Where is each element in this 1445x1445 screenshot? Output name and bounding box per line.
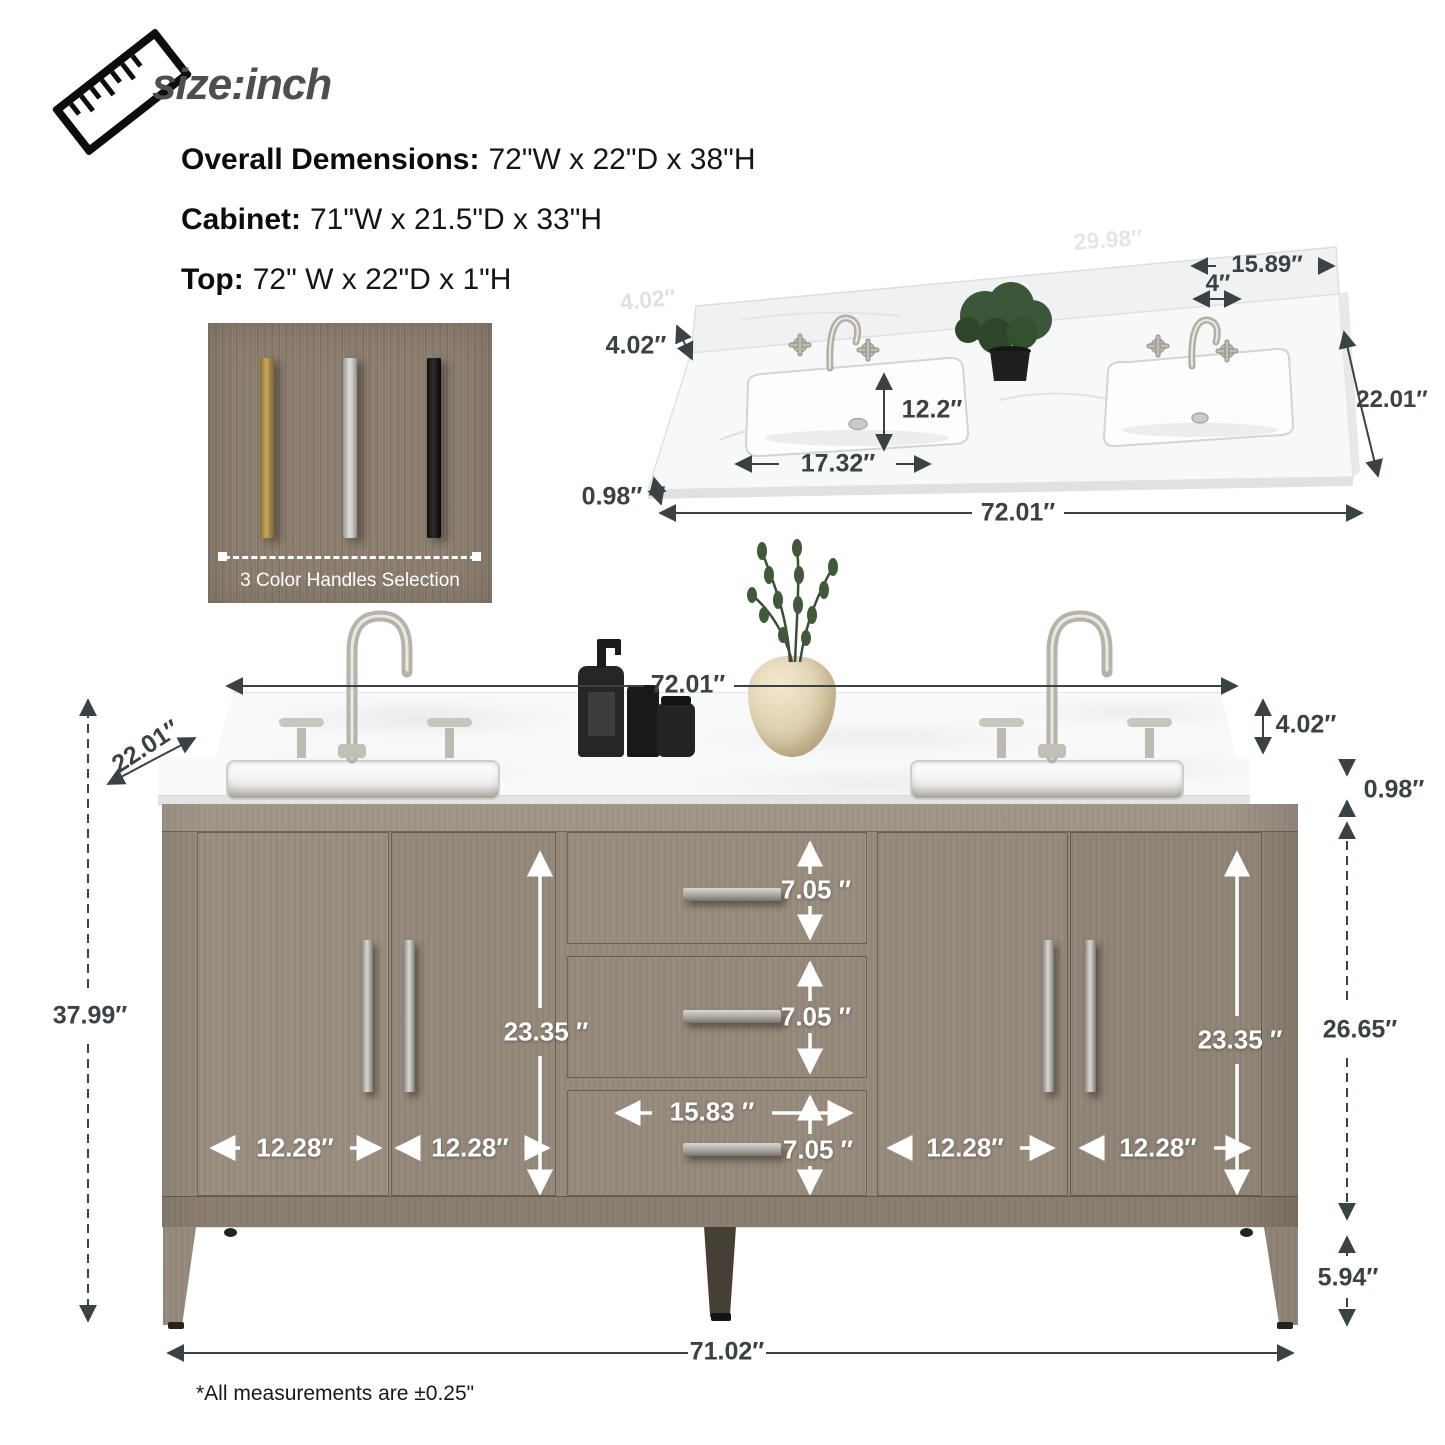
spec-cabinet-value: 71"W x 21.5"D x 33"H [310, 203, 602, 236]
vanity-plant [747, 539, 838, 662]
drawer-handle-2 [683, 1010, 781, 1023]
door-handle-left-a [362, 940, 373, 1092]
door-handle-left-b [404, 940, 415, 1092]
spec-cabinet-label: Cabinet: [181, 203, 301, 236]
dim-v-overall-height: 37.99″ [53, 1002, 128, 1031]
spec-cabinet: Cabinet:71"W x 21.5"D x 33"H [181, 203, 602, 237]
diagram-plant [955, 282, 1052, 354]
vanity-backsplash [215, 692, 1237, 759]
spec-top-value: 72" W x 22"D x 1"H [253, 263, 512, 296]
dim-ct-backsplash-height: 4.02″ [606, 332, 667, 361]
silver-handle-swatch [343, 358, 357, 538]
door-handle-right-a [1043, 940, 1054, 1092]
door-handle-right-b [1085, 940, 1096, 1092]
dim-v-drawer-height-2: 7.05 ″ [781, 1002, 851, 1033]
dim-ct-thickness: 0.98″ [582, 483, 643, 512]
leveler-left [224, 1228, 237, 1237]
dim-v-top-width: 72.01″ [651, 671, 726, 700]
dim-v-drawer-height-1: 7.05 ″ [781, 875, 851, 906]
drawer-handle-3 [683, 1143, 781, 1156]
dim-watermark-2: 29.98″ [1073, 224, 1143, 256]
dash-end-right [472, 552, 481, 561]
size-diagram-page: size:inch Overall Demensions:72"W x 22"D… [0, 0, 1445, 1445]
dim-ct-right-sink-width: 15.89″ [1231, 251, 1303, 279]
measurement-tolerance-note: *All measurements are ±0.25" [196, 1382, 474, 1406]
dim-v-backsplash-height: 4.02″ [1276, 711, 1337, 740]
leg-left [163, 1227, 196, 1325]
foot-center [711, 1313, 731, 1321]
spec-top: Top:72" W x 22"D x 1"H [181, 263, 511, 297]
dim-v-leg-height: 5.94″ [1318, 1264, 1379, 1293]
dim-ct-depth: 22.01″ [1356, 386, 1428, 414]
dim-v-door-width-2: 12.28″ [431, 1133, 509, 1164]
spec-overall-label: Overall Demensions: [181, 143, 479, 176]
size-unit-title: size:inch [152, 60, 331, 110]
dim-v-base-width: 71.02″ [690, 1338, 765, 1367]
dim-v-door-width-1: 12.28″ [256, 1133, 334, 1164]
foot-left [168, 1322, 184, 1329]
dim-v-door-height-left: 23.35 ″ [504, 1017, 589, 1048]
soap-dispenser-tip [615, 646, 621, 655]
foot-right [1277, 1322, 1293, 1329]
drawer-handle-1 [683, 888, 781, 901]
spec-top-label: Top: [181, 263, 244, 296]
handle-selection-panel: 3 Color Handles Selection [208, 323, 492, 603]
gold-handle-swatch [260, 358, 274, 538]
dim-v-cabinet-height: 26.65″ [1323, 1016, 1398, 1045]
handle-selection-caption: 3 Color Handles Selection [208, 570, 492, 592]
soap-dispenser-label [588, 692, 615, 736]
leg-right [1264, 1227, 1298, 1325]
dim-v-drawer-height-3: 7.05 ″ [783, 1135, 853, 1166]
dim-v-door-width-4: 12.28″ [1119, 1133, 1197, 1164]
left-sink [226, 760, 500, 800]
dim-watermark-1: 4.02″ [619, 284, 677, 317]
cabinet-bottom-rail [162, 1196, 1298, 1228]
dim-v-door-width-3: 12.28″ [926, 1133, 1004, 1164]
leveler-right [1240, 1228, 1253, 1237]
dim-ct-sink-depth: 12.2″ [902, 396, 963, 425]
dim-v-top-thickness: 0.98″ [1364, 776, 1425, 805]
countertop-dim-arrows [654, 266, 1378, 513]
dim-ct-sink-width: 17.32″ [801, 450, 876, 479]
dash-end-left [218, 552, 227, 561]
selection-dashed-line [224, 556, 476, 559]
spec-overall-value: 72"W x 22"D x 38"H [488, 143, 755, 176]
spec-overall: Overall Demensions:72"W x 22"D x 38"H [181, 143, 756, 177]
leg-center [701, 1227, 739, 1317]
dim-ct-faucet-spacing: 4″ [1206, 270, 1231, 298]
right-sink [910, 760, 1184, 800]
countertop-illustration [648, 247, 1360, 499]
soap-dispenser-neck [597, 646, 606, 668]
cabinet-top-rail [162, 804, 1298, 832]
black-handle-swatch [427, 358, 441, 538]
dim-v-door-height-right: 23.35 ″ [1198, 1025, 1283, 1056]
dim-ct-total-width: 72.01″ [981, 499, 1056, 528]
black-jar-short [657, 703, 695, 757]
dim-v-drawer-width: 15.83 ″ [670, 1097, 755, 1128]
